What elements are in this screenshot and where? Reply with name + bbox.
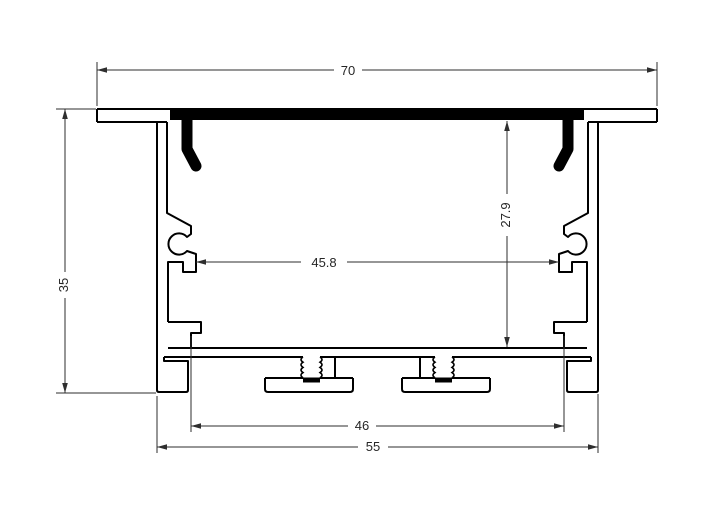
drawing-canvas: 70 35 27.9 45.8 46 55 — [0, 0, 719, 528]
dim-inner-width-arrow-end — [549, 259, 559, 265]
dim-base-width-arrow-start — [157, 444, 167, 450]
dim-overall-height-arrow-end — [62, 383, 68, 393]
dim-mount-slot-width-arrow-start — [191, 423, 201, 429]
led-cover — [170, 108, 584, 166]
dim-overall-height-arrow-start — [62, 109, 68, 119]
cover-strip — [170, 108, 584, 120]
dimension-label-mount-slot-width: 46 — [355, 418, 369, 433]
dim-top-width-arrow-start — [97, 67, 107, 73]
dimension-label-inner-width: 45.8 — [311, 255, 336, 270]
profile-floor — [164, 348, 591, 357]
cover-clip-left — [187, 114, 196, 166]
dim-inner-height-arrow-end — [504, 337, 510, 347]
dimension-label-top-width: 70 — [341, 63, 355, 78]
screw-slot-left-serration — [301, 357, 322, 378]
dimension-label-base-width: 55 — [366, 439, 380, 454]
cover-clip-right — [559, 114, 568, 166]
screw-slot-right-serration — [433, 357, 454, 378]
profile-outline — [97, 109, 657, 392]
dim-mount-slot-width-arrow-end — [554, 423, 564, 429]
dim-inner-height-arrow-start — [504, 121, 510, 131]
profile-mounting-feet — [265, 357, 490, 392]
dimension-label-overall-height: 35 — [56, 278, 71, 292]
dim-inner-width-arrow-start — [196, 259, 206, 265]
dim-base-width-arrow-end — [588, 444, 598, 450]
profile-cross-section-drawing: 70 35 27.9 45.8 46 55 — [0, 0, 719, 528]
dimension-label-inner-height: 27.9 — [498, 202, 513, 227]
dim-top-width-arrow-end — [647, 67, 657, 73]
